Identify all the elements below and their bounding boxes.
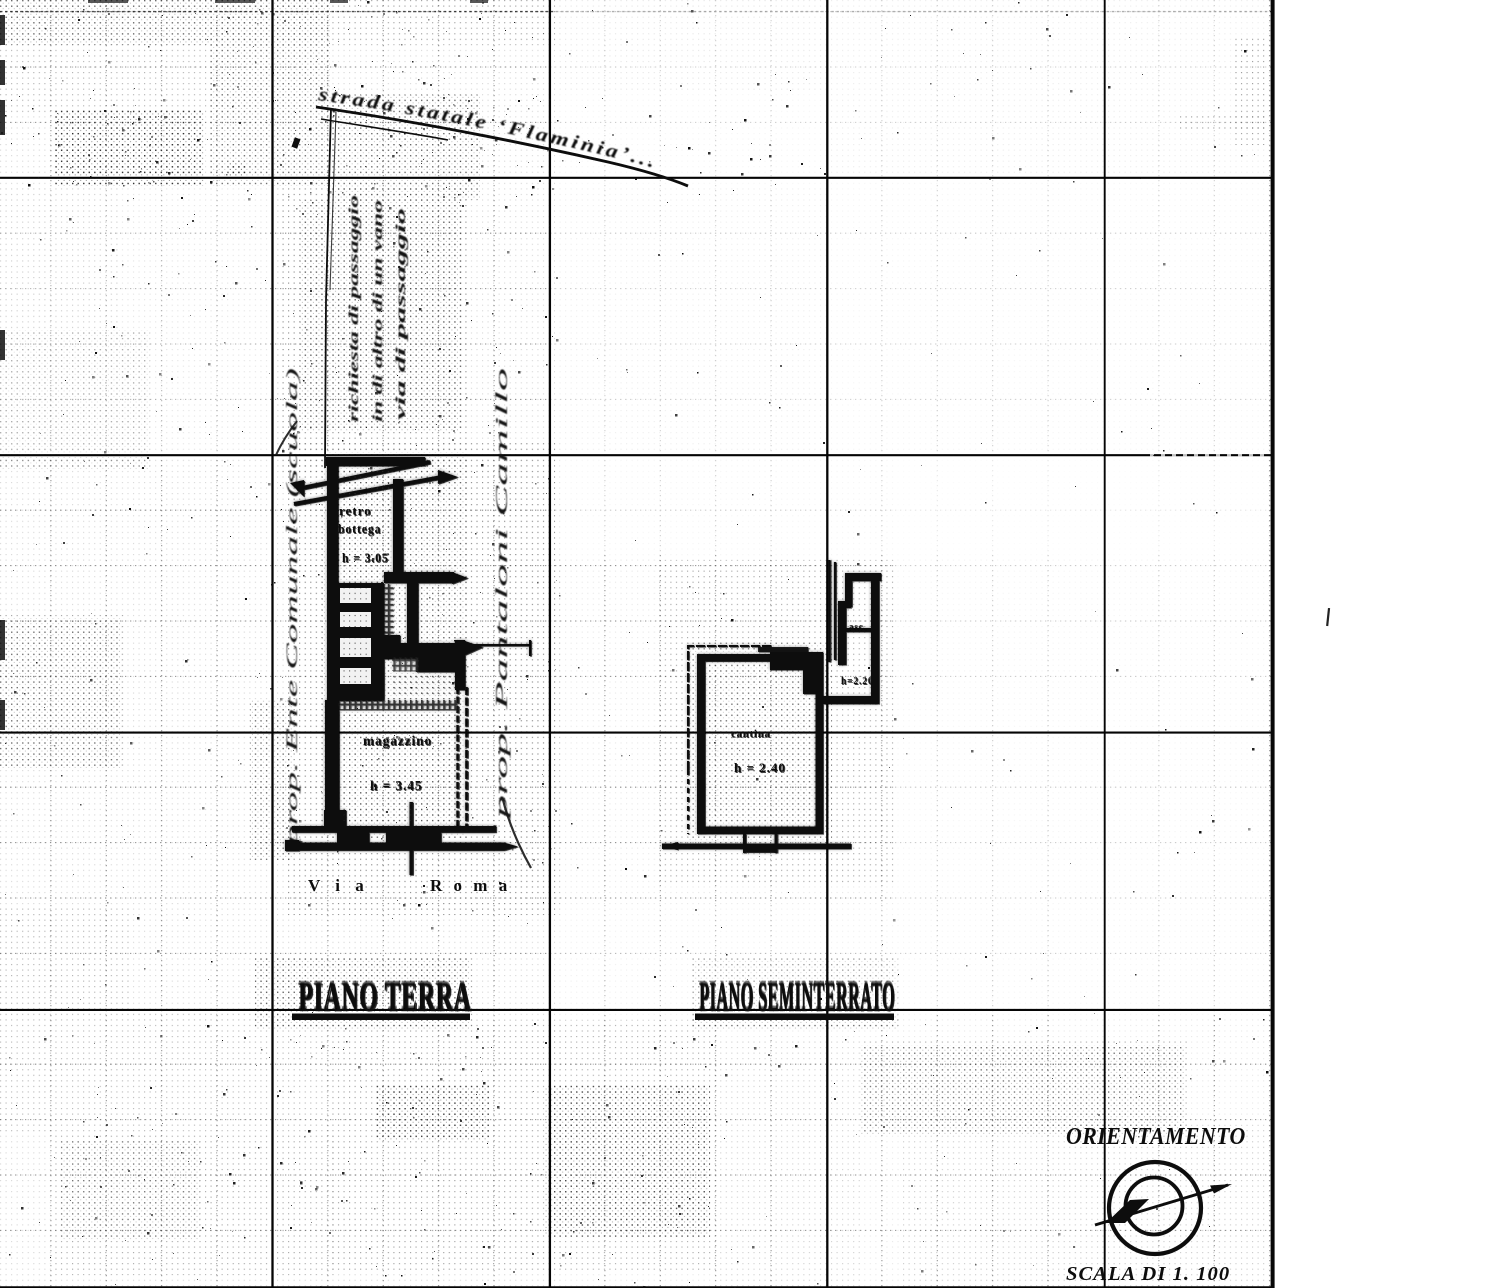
svg-text:via di passaggio: via di passaggio [393,207,408,420]
svg-text:R o m a: R o m a [430,876,511,895]
svg-text:magazzino: magazzino [364,733,433,748]
svg-text:V i a: V i a [308,876,369,895]
svg-text:PIANO TERRA: PIANO TERRA [298,973,471,1018]
svg-text:h=2.20: h=2.20 [842,676,875,688]
svg-text:prop. Pantaloni Camillo: prop. Pantaloni Camillo [492,368,511,821]
svg-text:ORIENTAMENTO: ORIENTAMENTO [1066,1123,1246,1149]
svg-text:in di altro di un vano: in di altro di un vano [370,200,385,422]
svg-text:richiesta di passaggio: richiesta di passaggio [346,195,361,422]
svg-text:PIANO SEMINTERRATO: PIANO SEMINTERRATO [699,971,895,1017]
svg-text:bottega: bottega [339,522,382,537]
svg-text:retro: retro [340,504,373,519]
svg-text:cantina: cantina [732,729,772,741]
svg-text:h = 3.05: h = 3.05 [343,551,390,566]
svg-text:h = 3.45: h = 3.45 [371,778,423,793]
svg-text:h = 2.40: h = 2.40 [735,761,787,776]
svg-text:SCALA DI 1. 100: SCALA DI 1. 100 [1066,1263,1230,1285]
svg-text:asc.: asc. [850,623,868,634]
